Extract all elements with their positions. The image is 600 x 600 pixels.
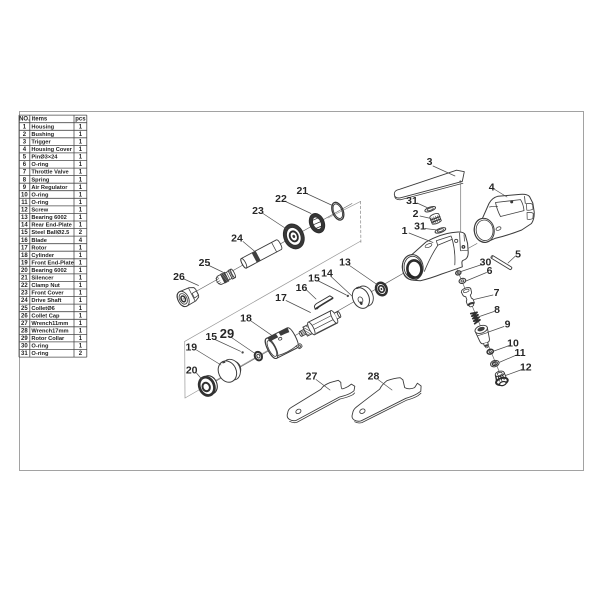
svg-text:ColletØ6: ColletØ6 (31, 306, 54, 312)
svg-text:5: 5 (23, 155, 27, 161)
svg-text:13: 13 (21, 215, 28, 221)
svg-text:Bearing 6002: Bearing 6002 (31, 215, 66, 221)
svg-text:1: 1 (79, 170, 83, 176)
svg-text:1: 1 (79, 162, 83, 168)
svg-text:12: 12 (520, 362, 532, 374)
svg-text:Silencer: Silencer (31, 276, 54, 282)
svg-text:Bearing 6002: Bearing 6002 (31, 268, 66, 274)
svg-text:29: 29 (21, 336, 28, 342)
svg-text:20: 20 (21, 268, 28, 274)
svg-text:1: 1 (402, 225, 408, 237)
svg-text:31: 31 (414, 221, 426, 233)
svg-text:6: 6 (487, 265, 493, 277)
svg-text:Air Regulator: Air Regulator (31, 185, 68, 191)
svg-text:19: 19 (185, 342, 197, 354)
svg-text:2: 2 (79, 351, 83, 357)
svg-text:17: 17 (21, 245, 28, 251)
svg-text:23: 23 (21, 291, 28, 297)
svg-text:O-ring: O-ring (31, 192, 49, 198)
svg-text:27: 27 (306, 371, 318, 383)
svg-text:2: 2 (23, 132, 27, 138)
svg-text:NO.: NO. (19, 117, 30, 123)
svg-text:1: 1 (79, 185, 83, 191)
svg-text:1: 1 (79, 192, 83, 198)
svg-text:15: 15 (308, 272, 320, 284)
svg-text:4: 4 (79, 238, 83, 244)
svg-text:1: 1 (79, 268, 83, 274)
svg-text:Collet Cap: Collet Cap (31, 313, 60, 319)
svg-text:Housing Cover: Housing Cover (31, 147, 72, 153)
svg-text:12: 12 (21, 208, 28, 214)
svg-text:Trigger: Trigger (31, 140, 51, 146)
svg-text:18: 18 (240, 313, 252, 325)
svg-text:22: 22 (21, 283, 28, 289)
svg-text:Rotor: Rotor (31, 245, 47, 251)
svg-text:26: 26 (173, 271, 185, 283)
svg-text:Drive Shaft: Drive Shaft (31, 298, 61, 304)
svg-text:22: 22 (275, 193, 287, 205)
svg-text:17: 17 (275, 292, 287, 304)
svg-text:18: 18 (21, 253, 28, 259)
svg-text:26: 26 (21, 313, 28, 319)
svg-text:9: 9 (505, 319, 511, 331)
svg-text:20: 20 (186, 365, 198, 377)
svg-text:5: 5 (515, 249, 521, 261)
svg-text:3: 3 (427, 156, 433, 168)
svg-text:14: 14 (21, 223, 28, 229)
svg-text:O-ring: O-ring (31, 200, 49, 206)
svg-text:1: 1 (79, 177, 83, 183)
svg-text:11: 11 (21, 200, 28, 206)
svg-text:1: 1 (79, 253, 83, 259)
svg-text:7: 7 (23, 170, 27, 176)
svg-text:2: 2 (79, 230, 83, 236)
svg-text:6: 6 (23, 162, 27, 168)
svg-text:Housing: Housing (31, 124, 54, 130)
svg-text:16: 16 (21, 238, 28, 244)
svg-text:items: items (32, 117, 48, 123)
svg-text:Spring: Spring (31, 177, 50, 183)
svg-text:24: 24 (21, 298, 28, 304)
svg-text:Throttle Valve: Throttle Valve (31, 170, 68, 176)
svg-text:1: 1 (79, 336, 83, 342)
svg-text:Steel BallØ2.5: Steel BallØ2.5 (31, 230, 69, 236)
svg-text:7: 7 (494, 287, 500, 299)
svg-text:1: 1 (79, 260, 83, 266)
svg-text:1: 1 (79, 223, 83, 229)
svg-text:4: 4 (23, 147, 27, 153)
svg-text:1: 1 (23, 124, 27, 130)
svg-text:11: 11 (514, 347, 525, 359)
svg-text:PinØ3×24: PinØ3×24 (31, 155, 58, 161)
svg-text:1: 1 (79, 329, 83, 335)
svg-text:Cylinder: Cylinder (31, 253, 55, 259)
svg-text:O-ring: O-ring (31, 351, 49, 357)
svg-text:28: 28 (368, 371, 380, 383)
svg-text:O-ring: O-ring (31, 162, 49, 168)
svg-text:Front End-Plate: Front End-Plate (31, 260, 73, 266)
svg-text:Wrench17mm: Wrench17mm (31, 329, 68, 335)
svg-text:Screw: Screw (31, 208, 48, 214)
svg-text:13: 13 (339, 257, 351, 269)
svg-text:Bushing: Bushing (31, 132, 54, 138)
svg-text:25: 25 (199, 257, 211, 269)
svg-text:24: 24 (231, 233, 243, 245)
svg-text:3: 3 (23, 140, 27, 146)
svg-text:21: 21 (21, 276, 28, 282)
svg-text:15: 15 (205, 331, 217, 343)
svg-text:14: 14 (321, 268, 333, 280)
svg-text:1: 1 (79, 155, 83, 161)
svg-text:1: 1 (79, 208, 83, 214)
svg-text:1: 1 (79, 132, 83, 138)
svg-text:8: 8 (494, 304, 500, 316)
svg-text:19: 19 (21, 260, 28, 266)
svg-text:9: 9 (23, 185, 27, 191)
svg-text:1: 1 (79, 291, 83, 297)
svg-text:1: 1 (79, 344, 83, 350)
svg-text:1: 1 (79, 215, 83, 221)
svg-text:1: 1 (79, 276, 83, 282)
svg-text:O-ring: O-ring (31, 344, 49, 350)
svg-text:Front Cover: Front Cover (31, 291, 64, 297)
svg-text:Blade: Blade (31, 238, 47, 244)
svg-text:1: 1 (79, 245, 83, 251)
svg-text:1: 1 (79, 124, 83, 130)
svg-text:31: 31 (21, 351, 28, 357)
svg-text:1: 1 (79, 200, 83, 206)
svg-text:31: 31 (406, 195, 418, 207)
svg-text:21: 21 (296, 185, 308, 197)
svg-text:Wrench11mm: Wrench11mm (31, 321, 68, 327)
svg-text:4: 4 (489, 182, 495, 194)
svg-text:27: 27 (21, 321, 28, 327)
svg-text:1: 1 (79, 283, 83, 289)
svg-text:Clamp Nut: Clamp Nut (31, 283, 60, 289)
svg-text:10: 10 (21, 192, 28, 198)
svg-text:29: 29 (220, 326, 234, 341)
svg-text:Rear End-Plate: Rear End-Plate (31, 223, 71, 229)
svg-text:15: 15 (21, 230, 28, 236)
svg-text:Rotor Collar: Rotor Collar (31, 336, 65, 342)
svg-text:28: 28 (21, 329, 28, 335)
svg-text:16: 16 (296, 282, 308, 294)
svg-text:1: 1 (79, 306, 83, 312)
svg-text:25: 25 (21, 306, 28, 312)
svg-text:1: 1 (79, 321, 83, 327)
svg-text:1: 1 (79, 313, 83, 319)
svg-text:2: 2 (413, 208, 419, 220)
svg-text:1: 1 (79, 298, 83, 304)
svg-text:8: 8 (23, 177, 27, 183)
svg-text:30: 30 (21, 344, 28, 350)
svg-text:1: 1 (79, 140, 83, 146)
svg-text:23: 23 (252, 205, 264, 217)
svg-text:1: 1 (79, 147, 83, 153)
svg-text:pcs: pcs (75, 117, 86, 123)
